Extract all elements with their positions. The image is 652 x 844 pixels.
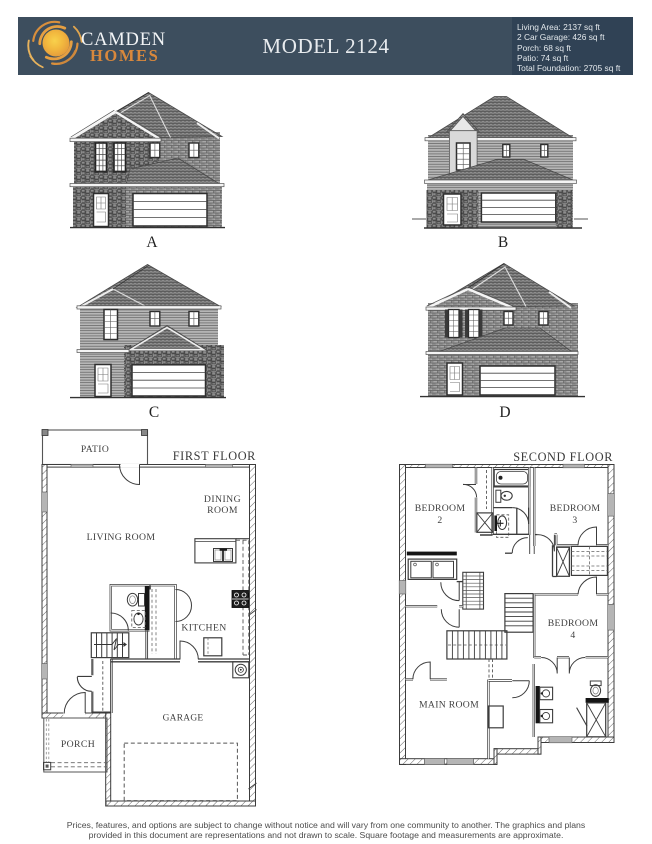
svg-text:BEDROOM: BEDROOM	[415, 503, 466, 514]
svg-text:MAIN ROOM: MAIN ROOM	[419, 700, 479, 711]
svg-text:FIRST FLOOR: FIRST FLOOR	[173, 449, 256, 463]
svg-text:ROOM: ROOM	[207, 505, 238, 516]
svg-text:BEDROOM: BEDROOM	[550, 503, 601, 514]
svg-text:B: B	[498, 234, 508, 251]
svg-text:PATIO: PATIO	[81, 444, 109, 455]
svg-text:BEDROOM: BEDROOM	[548, 618, 599, 629]
svg-text:LIVING ROOM: LIVING ROOM	[87, 532, 156, 543]
svg-text:DINING: DINING	[204, 494, 241, 505]
svg-text:A: A	[146, 234, 158, 251]
svg-text:2: 2	[437, 515, 442, 526]
svg-text:4: 4	[570, 630, 575, 641]
svg-text:SECOND FLOOR: SECOND FLOOR	[513, 450, 613, 464]
svg-text:GARAGE: GARAGE	[163, 714, 204, 724]
svg-text:KITCHEN: KITCHEN	[181, 623, 226, 634]
svg-text:PORCH: PORCH	[61, 739, 95, 750]
svg-text:3: 3	[572, 515, 577, 526]
